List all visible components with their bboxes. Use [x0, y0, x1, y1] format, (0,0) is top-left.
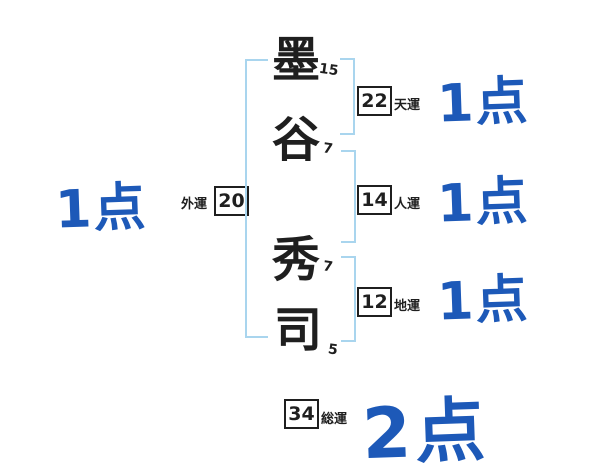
name-char-4-strokes: 5	[327, 341, 339, 358]
souun-score: 2点	[360, 374, 490, 470]
jinun-value-box: 14	[357, 185, 392, 215]
name-char-2-strokes: 7	[322, 140, 334, 157]
gaiun-score: 1点	[54, 164, 149, 242]
name-char-2: 谷	[272, 116, 320, 164]
souun-label: 総運	[321, 408, 347, 427]
tenun-score: 1点	[436, 58, 531, 136]
name-char-1: 墨	[272, 36, 320, 84]
tenun-value-box: 22	[357, 86, 392, 116]
tenun-label: 天運	[394, 94, 420, 113]
jinun-score: 1点	[436, 158, 531, 236]
name-char-1-strokes: 15	[318, 61, 340, 80]
chiun-label: 地運	[394, 295, 420, 314]
chiun-bracket	[341, 256, 356, 342]
gaiun-value-box: 20	[214, 186, 249, 216]
gaiun-label: 外運	[181, 193, 207, 212]
souun-value-box: 34	[284, 399, 319, 429]
outer-bracket	[245, 59, 268, 338]
name-fortune-diagram: 1点 外運 20 墨 15 谷 7 秀 7 司 5 22 天運 1点 14 人運…	[0, 0, 600, 470]
name-char-3: 秀	[272, 236, 320, 284]
jinun-label: 人運	[394, 193, 420, 212]
jinun-bracket	[341, 150, 356, 243]
chiun-value-box: 12	[357, 287, 392, 317]
name-char-3-strokes: 7	[322, 258, 334, 275]
name-char-4: 司	[274, 306, 322, 354]
chiun-score: 1点	[436, 256, 531, 334]
tenun-bracket	[340, 58, 355, 135]
